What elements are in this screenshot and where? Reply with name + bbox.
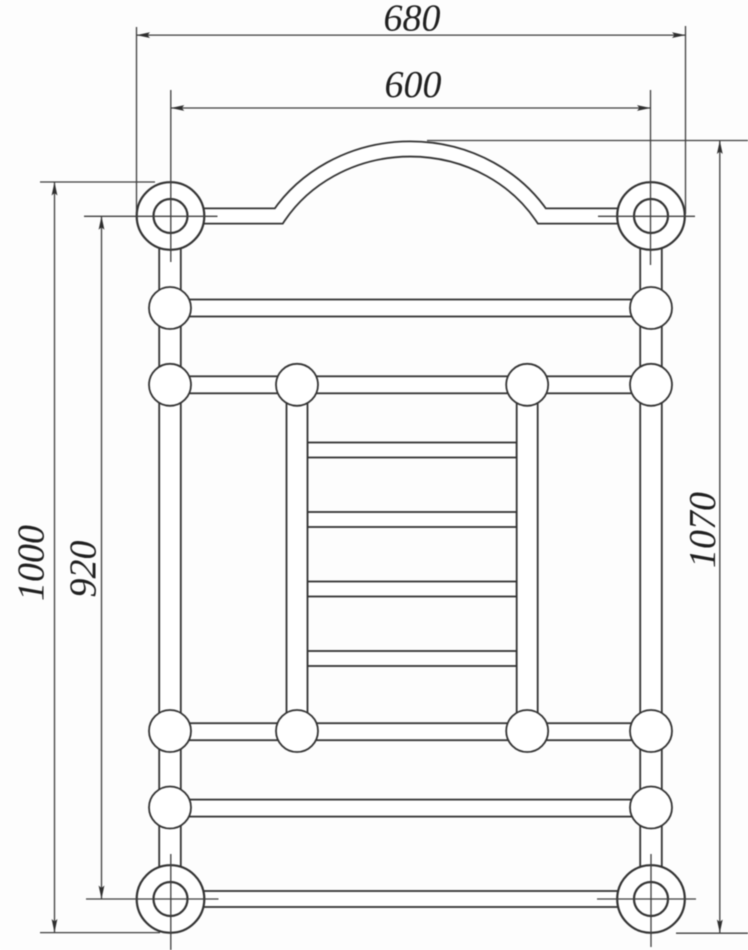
svg-text:1000: 1000 [10, 525, 52, 601]
svg-text:680: 680 [384, 0, 441, 40]
svg-text:600: 600 [385, 64, 442, 106]
svg-text:920: 920 [62, 541, 104, 598]
svg-text:1070: 1070 [682, 492, 724, 568]
